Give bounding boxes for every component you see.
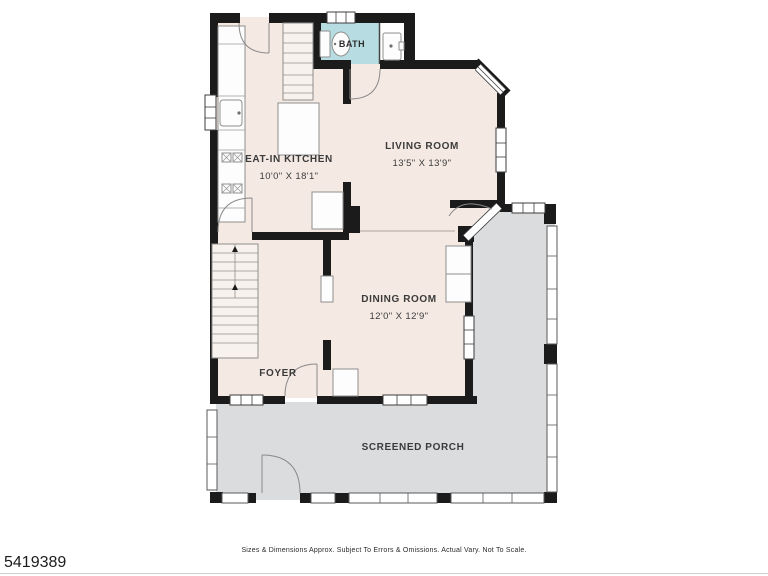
living-room-dims: 13'5" X 13'9" (393, 158, 452, 169)
back-stairs (283, 23, 313, 100)
disclaimer-text: Sizes & Dimensions Approx. Subject To Er… (0, 547, 768, 554)
foyer-stairs (212, 244, 258, 358)
refrigerator (312, 192, 343, 229)
bottom-edge-line (0, 573, 768, 574)
floor-plan-drawing: BATH EAT-IN KITCHEN 10'0" X 18'1" LIVING… (0, 0, 768, 576)
living-room-label: LIVING ROOM (385, 141, 459, 152)
dining-room-dims: 12'0" X 12'9" (370, 311, 429, 322)
opening-jamb-panel (321, 276, 333, 302)
bath-sink-icon (383, 33, 404, 60)
screened-porch-label: SCREENED PORCH (362, 442, 465, 453)
foyer-label: FOYER (259, 368, 297, 379)
listing-number: 5419389 (4, 554, 66, 572)
dining-room-label: DINING ROOM (361, 294, 437, 305)
hutch-upper (446, 246, 471, 274)
kitchen-island (278, 103, 319, 155)
bath-label: BATH (339, 39, 365, 49)
kitchen-faucet-icon (237, 111, 240, 114)
kitchen-label: EAT-IN KITCHEN (245, 154, 333, 165)
closet (333, 369, 358, 396)
kitchen-dims: 10'0" X 18'1" (260, 171, 319, 182)
hutch-lower (446, 274, 471, 302)
floor-plan-page: BATH EAT-IN KITCHEN 10'0" X 18'1" LIVING… (0, 0, 768, 576)
